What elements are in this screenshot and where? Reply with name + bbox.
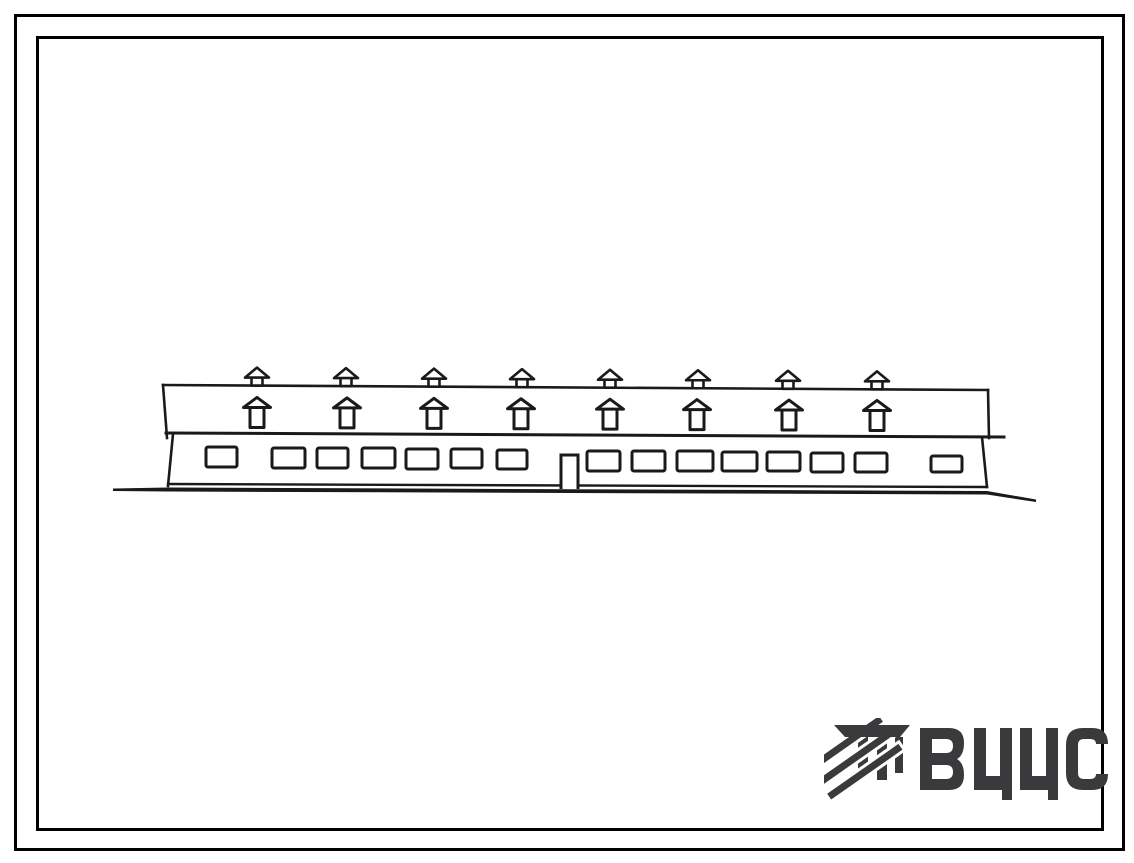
letter-ve	[920, 728, 964, 790]
facade-line	[163, 385, 988, 390]
facade-line	[168, 434, 173, 486]
roof-vent	[422, 369, 446, 387]
roof-vent	[508, 399, 535, 429]
facade-line	[163, 385, 167, 438]
ground-strip	[113, 488, 1036, 503]
roof-vent	[686, 370, 710, 388]
roof-vent	[334, 398, 361, 428]
window	[451, 449, 482, 468]
vcis-logo-emblem	[824, 718, 910, 802]
roof-vent	[864, 400, 891, 430]
entrance-door	[561, 455, 578, 489]
roof-vent	[865, 371, 889, 389]
door	[561, 455, 578, 489]
vcis-logo-letters	[920, 728, 1108, 800]
facade-line	[982, 437, 987, 487]
window	[206, 447, 237, 467]
facade-line	[988, 390, 989, 438]
roof-vents-top-row	[245, 368, 889, 390]
window	[406, 449, 438, 469]
window	[587, 451, 620, 471]
roof-vent	[776, 371, 800, 389]
roof-vent	[776, 400, 803, 430]
vcis-logo: ВЦИС	[824, 718, 1116, 810]
letter-es	[1066, 728, 1108, 790]
roof-vent	[684, 400, 711, 430]
letter-i	[1020, 728, 1058, 800]
window	[931, 456, 962, 472]
roof-vent	[421, 398, 448, 428]
roof-vent	[598, 370, 622, 388]
window	[362, 448, 395, 468]
window	[497, 450, 527, 469]
window	[722, 452, 757, 471]
ground-line	[113, 488, 1036, 503]
roof-vent	[597, 399, 624, 429]
window	[317, 448, 348, 468]
roof-vent	[510, 369, 534, 387]
roof-vent	[334, 368, 358, 386]
window	[677, 451, 713, 471]
windows-row	[206, 447, 962, 472]
vcis-logo-art	[824, 718, 1116, 810]
letter-tse	[974, 728, 1012, 800]
window	[767, 452, 800, 471]
window	[632, 451, 665, 471]
window	[855, 453, 887, 472]
roof-vent	[244, 397, 271, 427]
facade-line	[166, 433, 1004, 437]
roof-vent	[245, 368, 269, 386]
roof-vents-bottom-row	[244, 397, 891, 430]
scanned-drawing-sheet: { "frames": { "color": "#000000" }, "log…	[0, 0, 1134, 863]
emblem-top-beam	[834, 725, 910, 737]
window	[811, 453, 843, 472]
window	[272, 448, 305, 468]
